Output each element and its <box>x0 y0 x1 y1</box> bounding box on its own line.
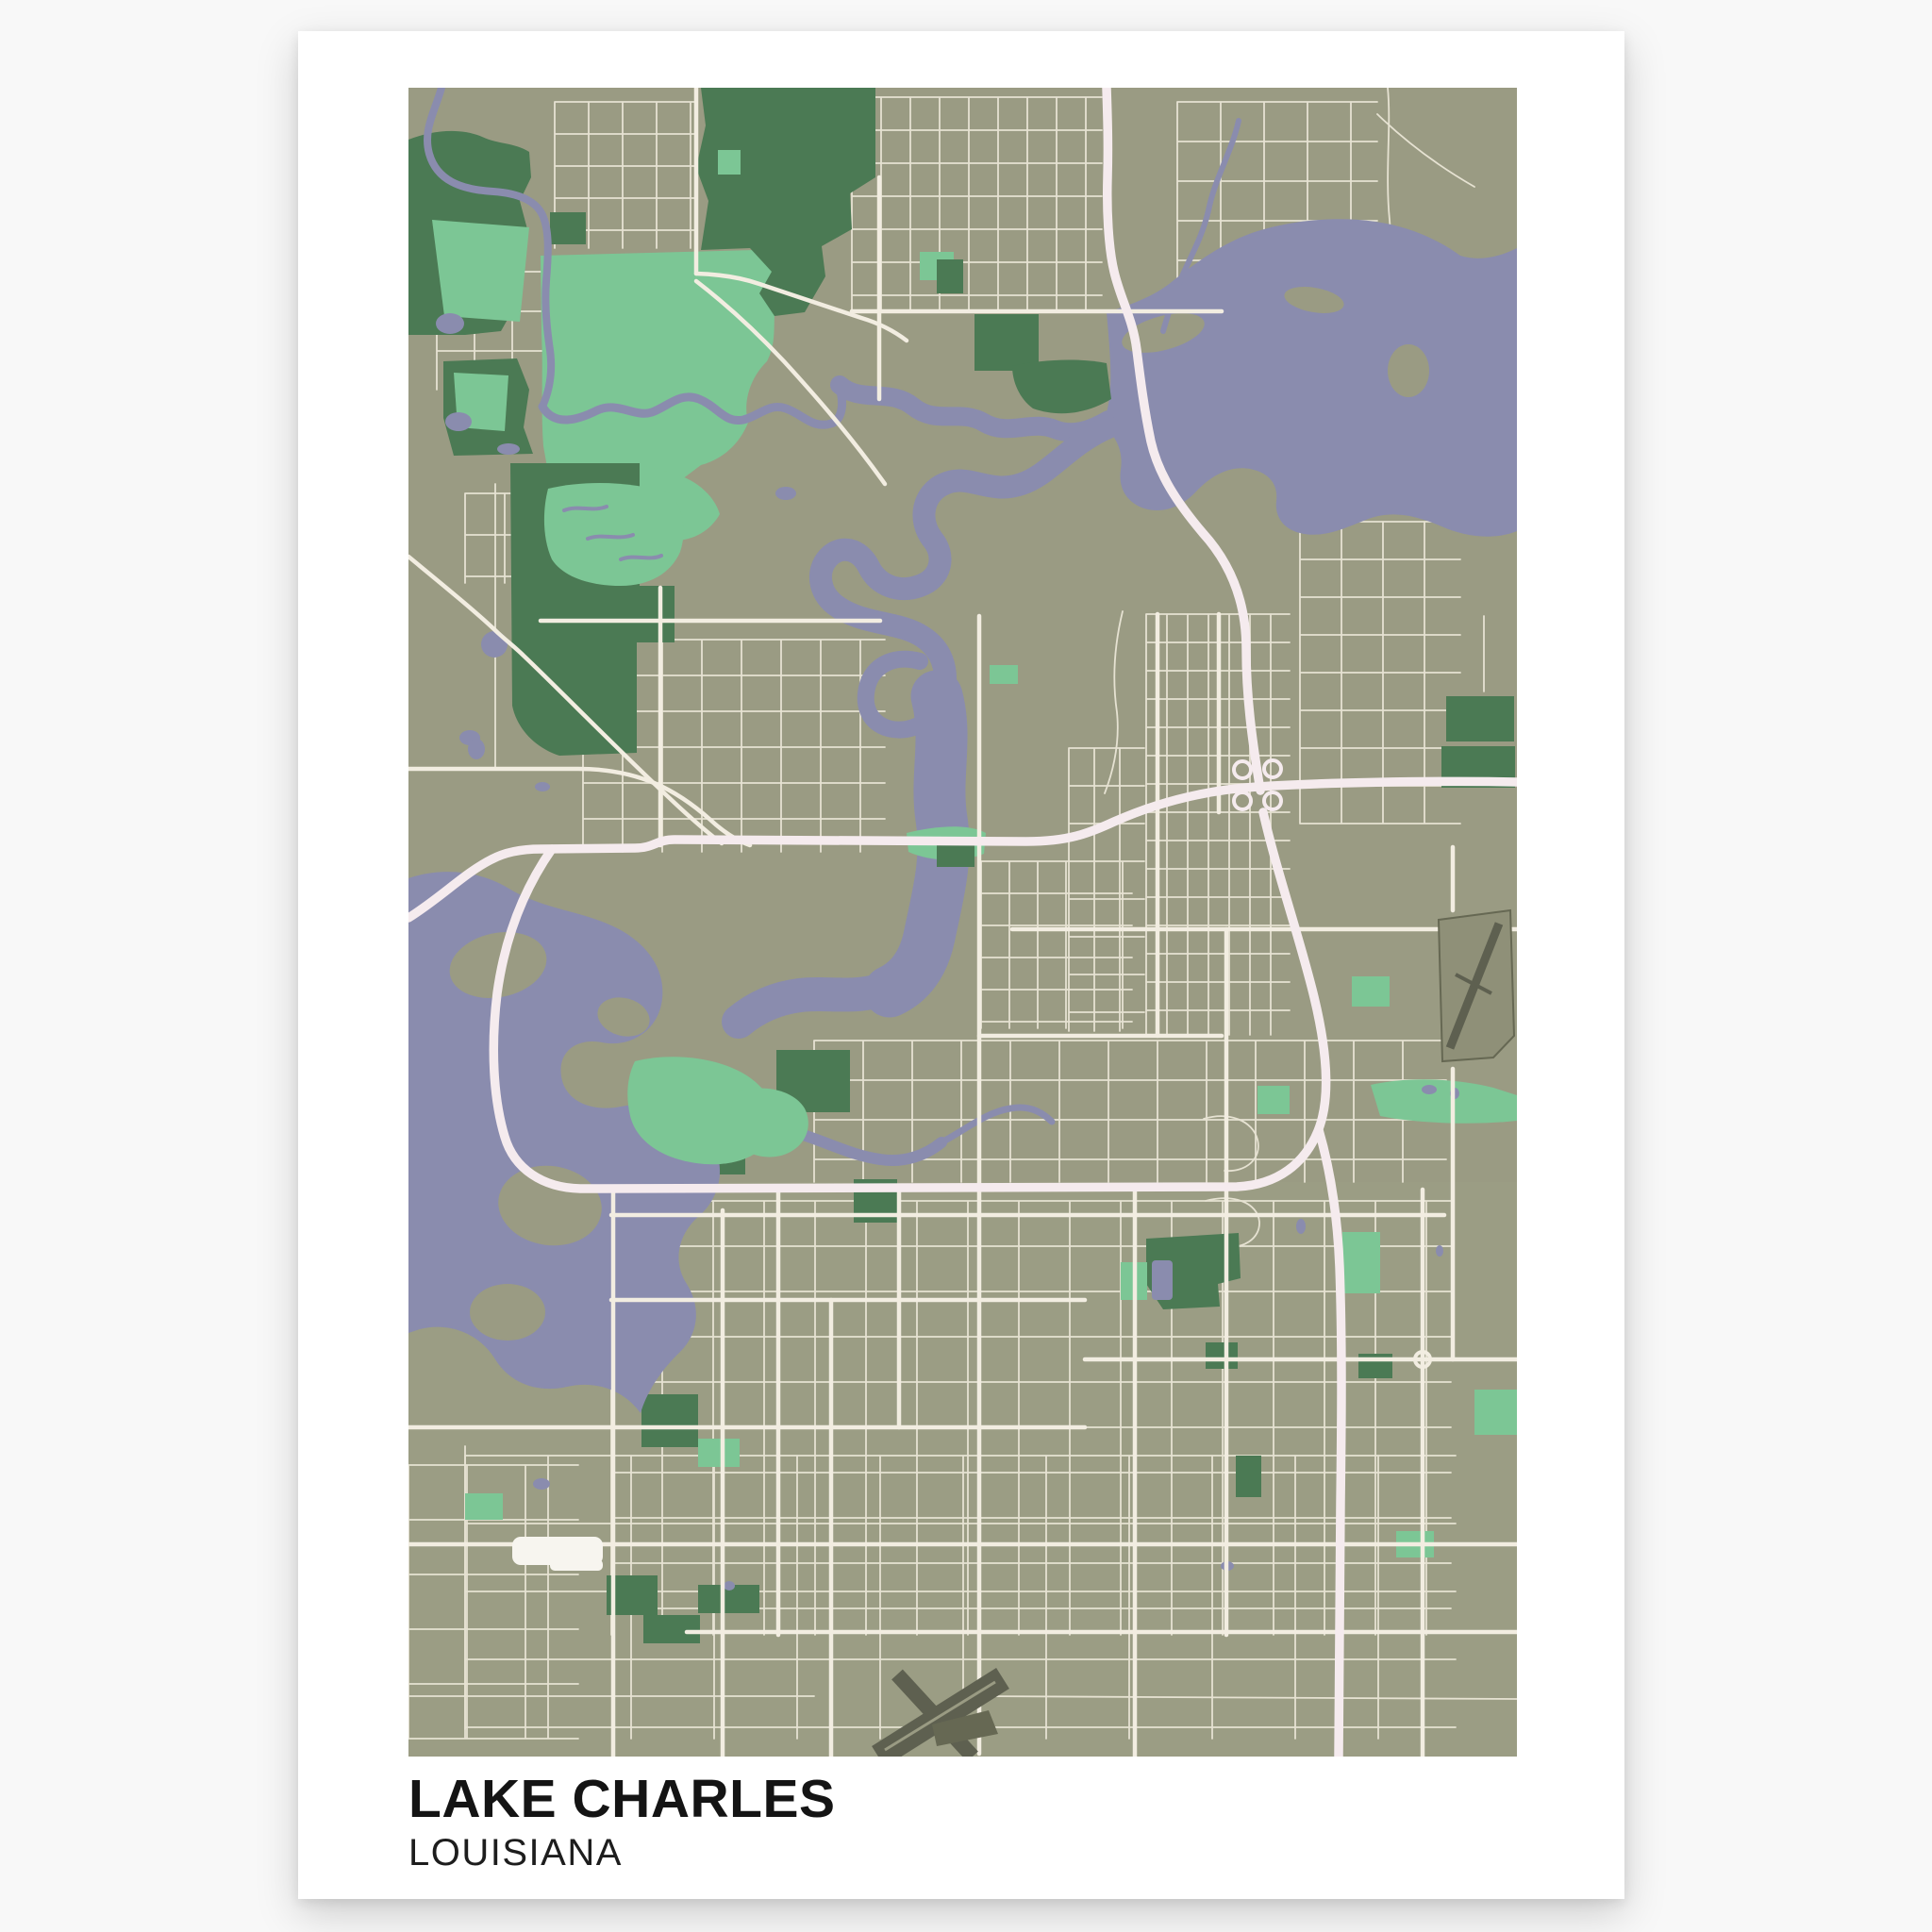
map-poster: LAKE CHARLES LOUISIANA <box>298 31 1624 1899</box>
map-canvas <box>408 88 1517 1757</box>
poster-caption: LAKE CHARLES LOUISIANA <box>408 1772 1541 1872</box>
wildlife-refuge <box>541 250 777 488</box>
chennault-airfield <box>1439 910 1514 1061</box>
golf-course <box>544 483 684 586</box>
product-photo-scene: LAKE CHARLES LOUISIANA <box>0 0 1932 1932</box>
state-subtitle: LOUISIANA <box>408 1834 1541 1872</box>
calcasieu-lake-north <box>1102 219 1517 536</box>
city-title: LAKE CHARLES <box>408 1772 1541 1828</box>
lakeshore-park <box>1012 359 1111 413</box>
city-map <box>408 88 1517 1757</box>
